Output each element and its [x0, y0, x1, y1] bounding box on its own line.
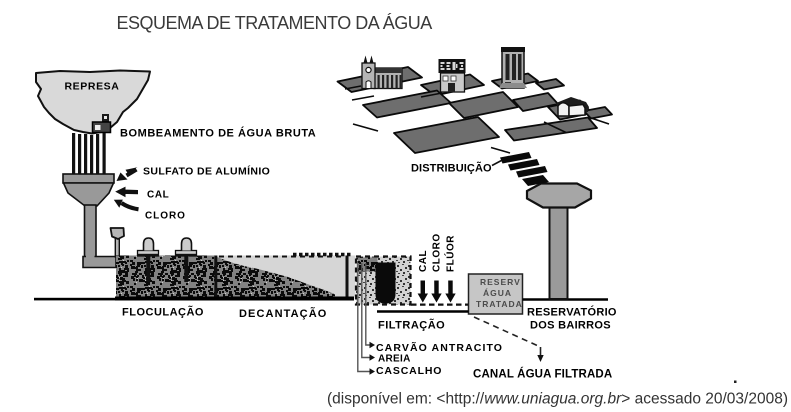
svg-text:DOS BAIRROS: DOS BAIRROS: [530, 320, 611, 332]
svg-text:CLORO: CLORO: [145, 211, 186, 222]
svg-text:ÁGUA: ÁGUA: [483, 288, 512, 298]
svg-text:CAL: CAL: [147, 190, 169, 201]
svg-text:CARVÃO ANTRACITO: CARVÃO ANTRACITO: [376, 341, 503, 354]
svg-text:CASCALHO: CASCALHO: [376, 365, 442, 377]
svg-text:FLÚOR: FLÚOR: [444, 235, 457, 272]
svg-text:CAL: CAL: [418, 250, 429, 272]
svg-text:DECANTAÇÃO: DECANTAÇÃO: [239, 307, 327, 320]
svg-text:TRATADA: TRATADA: [476, 299, 523, 309]
svg-text:CLORO: CLORO: [432, 233, 443, 272]
svg-text:RESERV: RESERV: [480, 277, 521, 287]
svg-text:DISTRIBUIÇÃO: DISTRIBUIÇÃO: [411, 162, 492, 175]
svg-text:SULFATO DE ALUMÍNIO: SULFATO DE ALUMÍNIO: [143, 165, 270, 178]
svg-text:AREIA: AREIA: [378, 354, 411, 365]
svg-text:FLOCULAÇÃO: FLOCULAÇÃO: [122, 306, 204, 319]
svg-text:CANAL ÁGUA FILTRADA: CANAL ÁGUA FILTRADA: [473, 368, 612, 381]
svg-text:BOMBEAMENTO DE ÁGUA BRUTA: BOMBEAMENTO DE ÁGUA BRUTA: [120, 127, 316, 140]
svg-text:FILTRAÇÃO: FILTRAÇÃO: [378, 319, 445, 332]
svg-text:ESQUEMA DE TRATAMENTO DA ÁGUA: ESQUEMA DE TRATAMENTO DA ÁGUA: [117, 13, 433, 33]
svg-text:RESERVATÓRIO: RESERVATÓRIO: [527, 306, 617, 319]
svg-text:REPRESA: REPRESA: [65, 81, 120, 93]
svg-text:(disponível em: <http://www.un: (disponível em: <http://www.uniagua.org.…: [327, 391, 788, 408]
